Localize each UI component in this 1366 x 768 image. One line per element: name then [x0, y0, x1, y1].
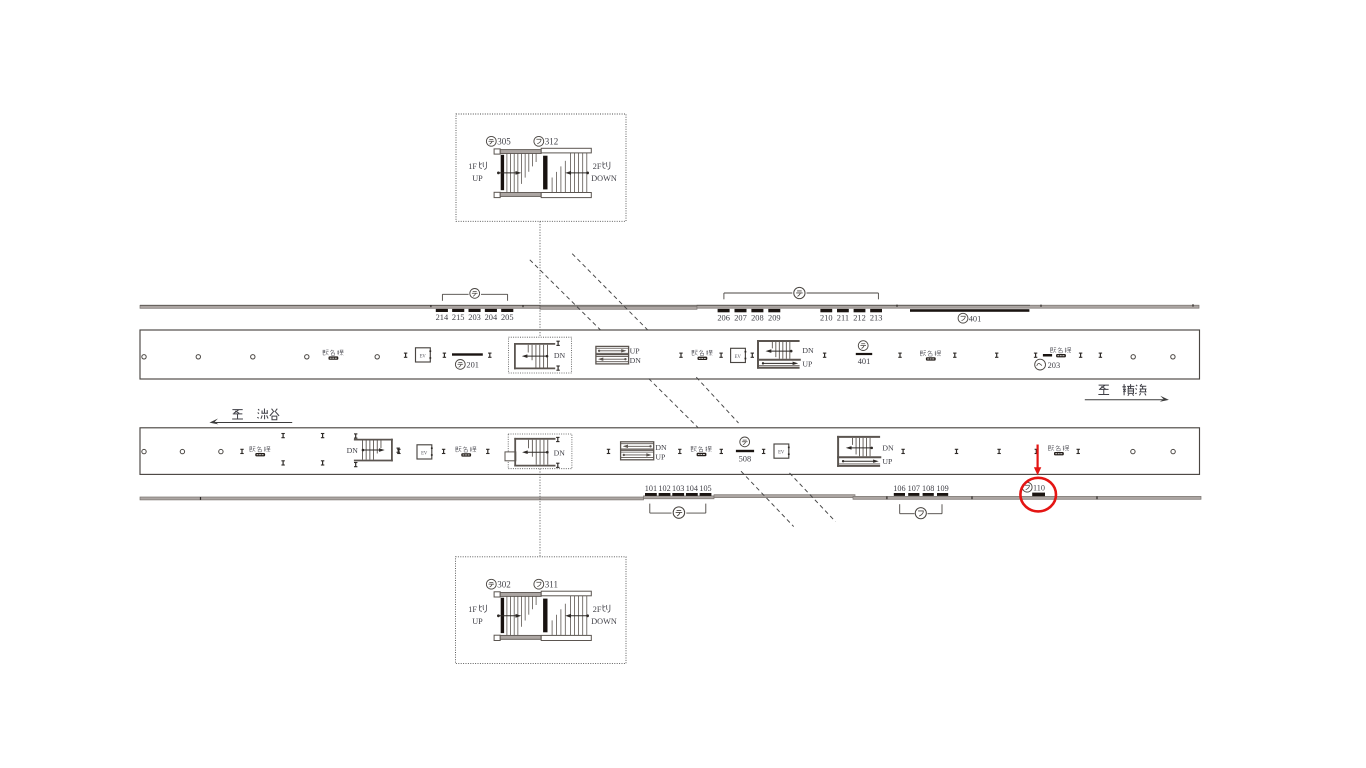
svg-text:104: 104 [686, 484, 698, 493]
svg-text:203: 203 [468, 313, 481, 322]
svg-text:1F: 1F [468, 162, 477, 171]
svg-text:305: 305 [497, 137, 511, 147]
svg-text:207: 207 [734, 314, 747, 323]
svg-text:102: 102 [658, 484, 670, 493]
svg-text:210: 210 [820, 314, 833, 323]
svg-text:312: 312 [545, 137, 559, 147]
svg-text:205: 205 [501, 313, 514, 322]
svg-text:110: 110 [1033, 484, 1045, 493]
svg-text:DN: DN [802, 346, 814, 355]
svg-text:105: 105 [699, 484, 711, 493]
svg-text:401: 401 [858, 357, 871, 366]
svg-text:DN: DN [882, 443, 894, 452]
svg-text:DN: DN [554, 351, 566, 360]
svg-text:201: 201 [466, 361, 479, 370]
svg-text:DOWN: DOWN [591, 617, 617, 626]
svg-text:208: 208 [751, 314, 764, 323]
svg-text:UP: UP [882, 457, 893, 466]
svg-text:206: 206 [717, 314, 730, 323]
svg-text:1F: 1F [468, 605, 477, 614]
svg-text:214: 214 [436, 313, 449, 322]
svg-text:401: 401 [969, 315, 982, 324]
svg-text:UP: UP [472, 174, 483, 183]
svg-text:508: 508 [739, 455, 752, 464]
svg-text:DN: DN [347, 446, 359, 455]
svg-text:2F: 2F [593, 162, 602, 171]
svg-text:204: 204 [485, 313, 498, 322]
svg-text:101: 101 [645, 484, 657, 493]
svg-text:107: 107 [908, 484, 920, 493]
svg-text:2F: 2F [593, 605, 602, 614]
svg-text:212: 212 [853, 314, 866, 323]
svg-text:DOWN: DOWN [591, 174, 617, 183]
svg-text:203: 203 [1048, 361, 1061, 370]
svg-text:215: 215 [452, 313, 465, 322]
svg-text:UP: UP [472, 617, 483, 626]
svg-text:UP: UP [655, 452, 666, 461]
svg-text:DN: DN [554, 448, 566, 457]
svg-text:DN: DN [655, 443, 667, 452]
svg-text:213: 213 [870, 314, 883, 323]
svg-text:209: 209 [768, 314, 781, 323]
svg-text:UP: UP [630, 346, 641, 355]
svg-text:DN: DN [630, 356, 642, 365]
svg-text:302: 302 [497, 580, 511, 590]
svg-text:109: 109 [936, 484, 948, 493]
svg-text:103: 103 [672, 484, 684, 493]
svg-text:311: 311 [545, 580, 558, 590]
svg-text:UP: UP [802, 359, 813, 368]
svg-text:211: 211 [837, 314, 849, 323]
svg-text:108: 108 [922, 484, 934, 493]
svg-text:106: 106 [893, 484, 905, 493]
